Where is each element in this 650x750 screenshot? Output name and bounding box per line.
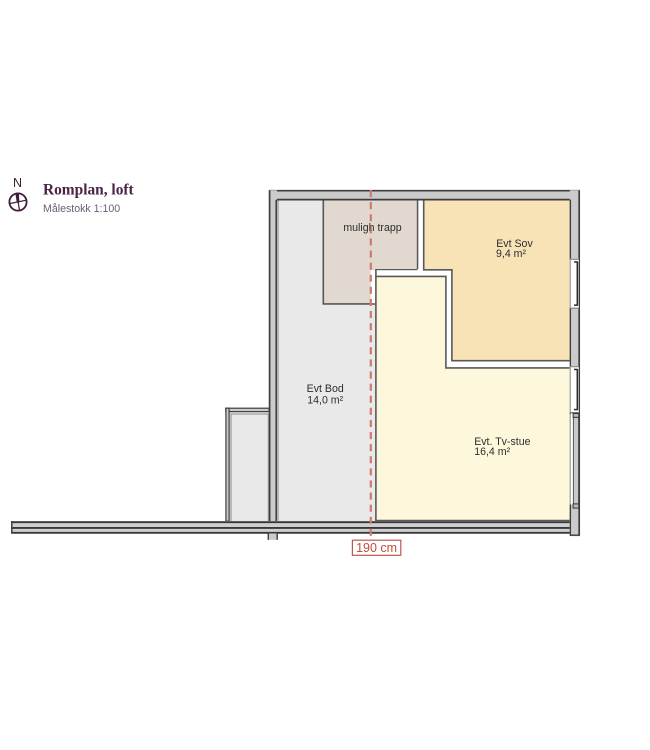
svg-text:Målestokk 1:100: Målestokk 1:100 bbox=[43, 203, 120, 215]
svg-text:9,4 m²: 9,4 m² bbox=[496, 248, 526, 260]
svg-text:190 cm: 190 cm bbox=[356, 541, 397, 555]
svg-text:16,4 m²: 16,4 m² bbox=[474, 446, 510, 458]
svg-text:N: N bbox=[13, 176, 22, 190]
svg-text:Evt Bod: Evt Bod bbox=[307, 383, 344, 395]
svg-text:Romplan, loft: Romplan, loft bbox=[43, 182, 135, 199]
svg-text:14,0 m²: 14,0 m² bbox=[307, 394, 343, 406]
svg-text:muligh trapp: muligh trapp bbox=[343, 222, 401, 234]
